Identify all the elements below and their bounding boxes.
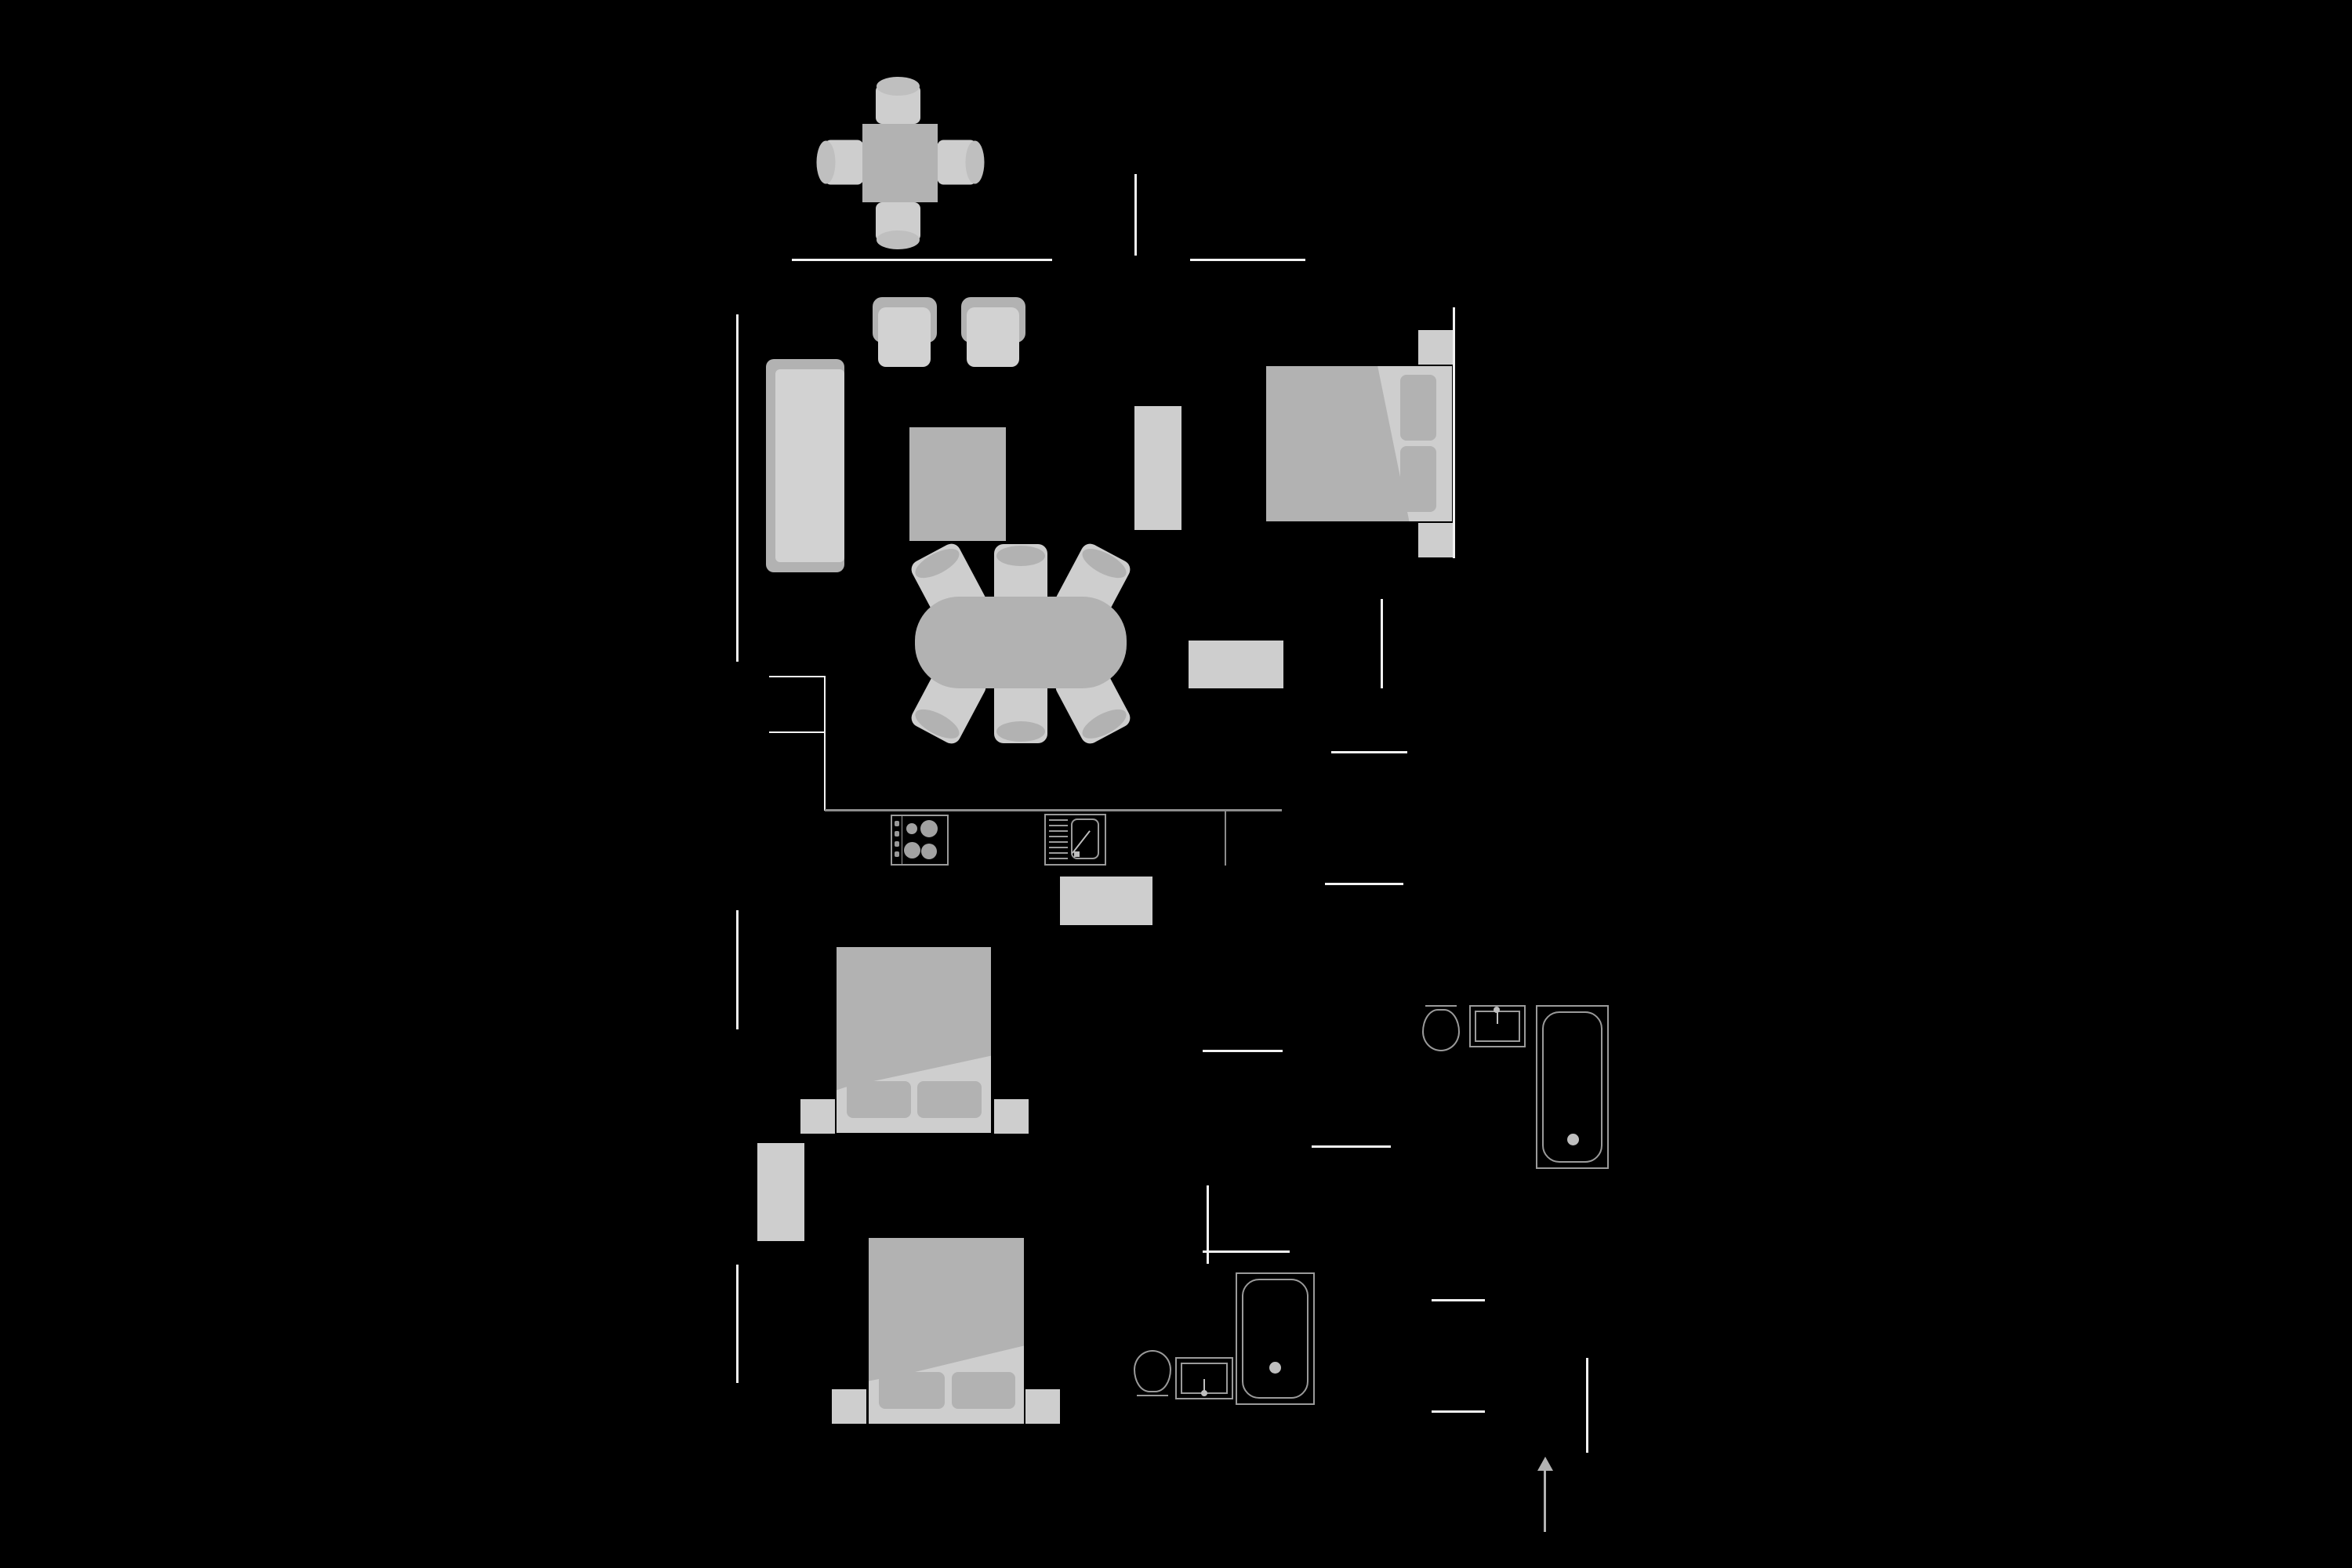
shower-tub-icon: [1236, 1272, 1315, 1405]
armchair-icon: [961, 297, 1025, 368]
shower-tub-drain: [1269, 1362, 1281, 1374]
chair-cap: [1078, 543, 1131, 584]
wall-segment: [736, 1265, 739, 1383]
sink-drainboard: [1049, 819, 1068, 860]
wall-segment: [1432, 1410, 1485, 1413]
duct-niche-wall: [769, 676, 825, 677]
stool-icon: [876, 85, 920, 124]
cooktop-knob: [895, 831, 899, 837]
chair-cap: [911, 703, 964, 744]
bed-pillow: [1400, 446, 1436, 512]
bed-pillow: [952, 1372, 1015, 1409]
wall-segment: [792, 259, 1052, 261]
tv-cabinet-icon: [1134, 406, 1181, 530]
wall-segment: [1381, 599, 1383, 688]
stool-icon: [876, 202, 920, 241]
stool-cap: [877, 230, 920, 249]
stool-icon: [938, 140, 977, 185]
basin-faucet: [1497, 1011, 1498, 1024]
double-bed-icon: [869, 1238, 1024, 1424]
kitchen-island-icon: [1060, 877, 1152, 925]
chair-cap: [996, 721, 1045, 742]
burner: [906, 823, 917, 834]
basin-faucet-dot: [1201, 1390, 1207, 1396]
wall-segment: [1432, 1299, 1485, 1301]
stool-cap: [966, 141, 985, 184]
bathtub-icon: [1536, 1005, 1609, 1169]
floor-plan: [0, 0, 2352, 1568]
wall-segment: [736, 910, 739, 1029]
shower-tub-inner: [1242, 1279, 1308, 1399]
wall-segment: [736, 314, 739, 662]
dining-table-icon: [915, 597, 1127, 688]
wall-segment: [1203, 1050, 1283, 1052]
nightstand-icon: [1418, 523, 1453, 557]
kitchen-counter-line: [1225, 809, 1226, 866]
cooktop-knob: [895, 821, 899, 826]
wall-segment: [1312, 1145, 1391, 1148]
burner: [904, 842, 920, 858]
double-bed-icon: [1266, 366, 1452, 521]
kitchen-counter-line: [825, 809, 1282, 811]
armchair-seat: [878, 307, 931, 367]
wall-segment: [1325, 883, 1403, 885]
stool-icon: [825, 140, 864, 185]
nightstand-icon: [1418, 330, 1453, 365]
nightstand-icon: [800, 1099, 835, 1134]
nightstand-icon: [832, 1389, 866, 1424]
cooktop-knob: [895, 841, 899, 847]
wall-segment: [1203, 1250, 1290, 1253]
double-bed-icon: [837, 947, 991, 1133]
wall-segment: [1190, 259, 1305, 261]
chair-cap: [996, 546, 1045, 566]
north-arrow-head: [1537, 1457, 1553, 1471]
coffee-table-icon: [909, 427, 1006, 541]
sofa-icon: [766, 359, 844, 572]
burner: [921, 844, 937, 859]
toilet-tank: [1425, 1005, 1457, 1007]
armchair-icon: [873, 297, 937, 368]
duct-niche-wall: [769, 731, 825, 733]
nightstand-icon: [1025, 1389, 1060, 1424]
duct-niche-wall: [824, 676, 826, 811]
washbasin-icon: [1469, 1005, 1526, 1047]
bed-pillow: [847, 1081, 911, 1118]
cooktop-icon: [891, 815, 949, 866]
sideboard-icon: [1189, 641, 1283, 688]
wall-segment: [1586, 1358, 1588, 1453]
bed-pillow: [1400, 375, 1436, 441]
nightstand-icon: [994, 1099, 1029, 1134]
north-arrow-icon: [1544, 1471, 1546, 1532]
sink-drain: [1074, 851, 1080, 857]
chair-cap: [1078, 703, 1131, 744]
cooktop-knob: [895, 851, 899, 857]
toilet-icon: [1134, 1350, 1171, 1396]
kitchen-sink-icon: [1044, 814, 1106, 866]
bed-pillow: [917, 1081, 982, 1118]
toilet-bowl: [1422, 1009, 1460, 1051]
armchair-seat: [967, 307, 1019, 367]
bathtub-drain: [1567, 1134, 1579, 1145]
bistro-table-icon: [862, 124, 938, 202]
wall-segment: [1453, 307, 1455, 558]
washbasin-icon: [1175, 1357, 1233, 1399]
sofa-seat: [775, 369, 844, 562]
toilet-bowl: [1134, 1350, 1171, 1392]
wall-segment: [1134, 174, 1137, 256]
wardrobe-icon: [757, 1143, 804, 1241]
chair-cap: [911, 543, 964, 584]
basin-faucet-dot: [1494, 1007, 1500, 1013]
toilet-base: [1137, 1395, 1168, 1396]
stool-cap: [877, 77, 920, 96]
cooktop-panel-divider: [902, 816, 902, 864]
burner: [920, 820, 938, 837]
toilet-icon: [1422, 1005, 1460, 1051]
bed-pillow: [879, 1372, 945, 1409]
wall-segment: [1331, 751, 1407, 753]
stool-cap: [817, 141, 836, 184]
